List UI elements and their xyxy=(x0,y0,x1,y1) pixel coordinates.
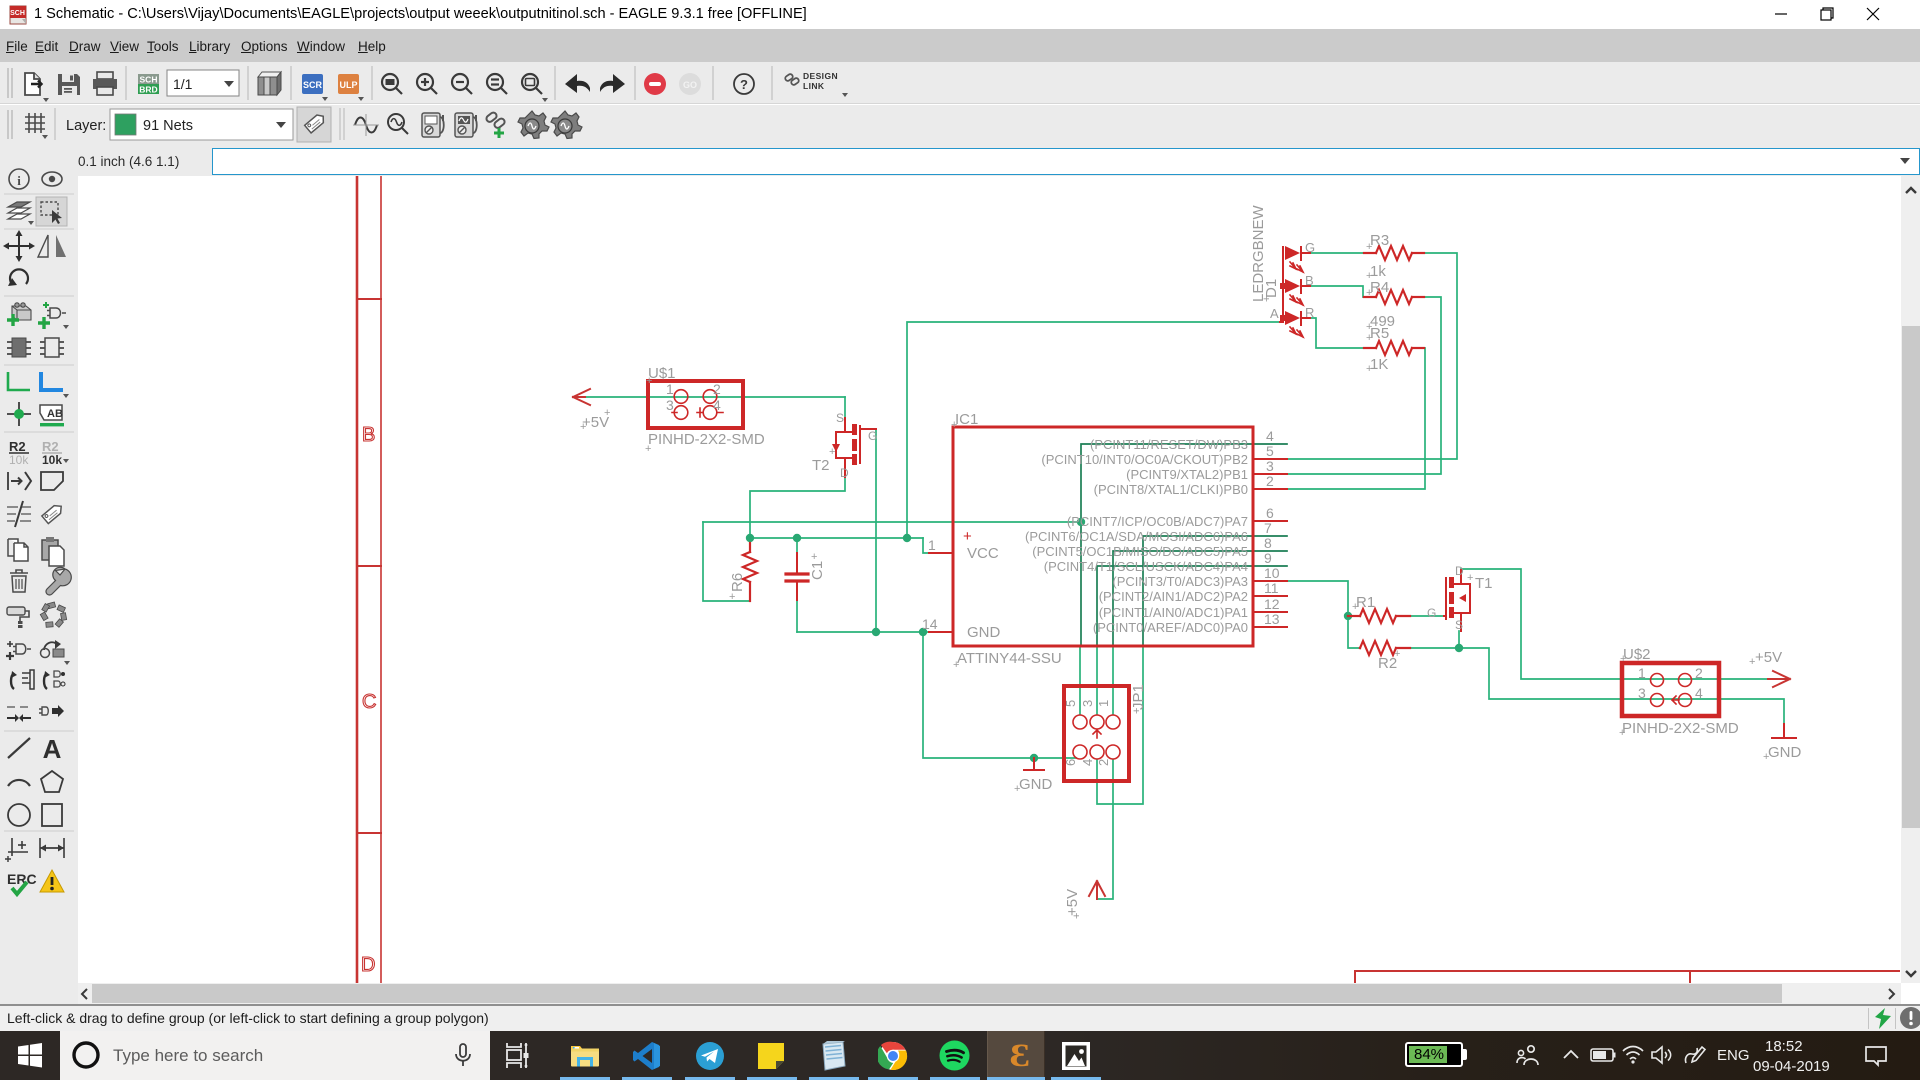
svg-text:(PCINT3/T0/ADC3)PA3: (PCINT3/T0/ADC3)PA3 xyxy=(1112,574,1248,589)
svg-text:3: 3 xyxy=(1080,700,1095,707)
svg-text:C1: C1 xyxy=(809,561,826,580)
svg-text:9: 9 xyxy=(1264,550,1272,566)
svg-text:+: + xyxy=(1394,648,1400,660)
svg-text:+: + xyxy=(1261,296,1273,302)
svg-text:(PCINT0/AREF/ADC0)PA0: (PCINT0/AREF/ADC0)PA0 xyxy=(1093,620,1248,635)
svg-text:D: D xyxy=(361,954,375,976)
svg-text:(PCINT11/RESET/DW)PB3: (PCINT11/RESET/DW)PB3 xyxy=(1090,437,1248,452)
svg-text:8: 8 xyxy=(1264,535,1272,551)
svg-text:R6: R6 xyxy=(729,573,746,592)
svg-text:(PCINT9/XTAL2)PB1: (PCINT9/XTAL2)PB1 xyxy=(1126,467,1248,482)
svg-text:PINHD-2X2-SMD: PINHD-2X2-SMD xyxy=(648,431,765,448)
svg-text:A: A xyxy=(1270,306,1279,321)
svg-text:GND: GND xyxy=(1019,776,1053,793)
svg-text:B: B xyxy=(1305,273,1314,288)
svg-text:B: B xyxy=(362,424,375,446)
svg-text:10: 10 xyxy=(1264,565,1280,581)
svg-text:2: 2 xyxy=(1266,473,1274,489)
svg-text:6: 6 xyxy=(1266,505,1274,521)
svg-text:+: + xyxy=(1131,708,1143,714)
svg-text:R2: R2 xyxy=(9,439,26,454)
svg-text:14: 14 xyxy=(922,616,938,632)
svg-text:GND: GND xyxy=(1768,744,1802,761)
svg-text:ERC: ERC xyxy=(7,871,37,887)
svg-text:R5: R5 xyxy=(1370,325,1389,342)
svg-text:+: + xyxy=(1014,783,1020,795)
svg-text:4: 4 xyxy=(1266,428,1274,444)
svg-text:G: G xyxy=(1305,240,1315,255)
svg-text:BRD: BRD xyxy=(139,85,157,95)
svg-text:ULP: ULP xyxy=(340,80,358,90)
svg-text:(PCINT8/XTAL1/CLKI)PB0: (PCINT8/XTAL1/CLKI)PB0 xyxy=(1094,482,1248,497)
svg-text:G: G xyxy=(868,429,877,443)
svg-text:(PCINT5/OC1B/MISO/DO/ADC5)PA5: (PCINT5/OC1B/MISO/DO/ADC5)PA5 xyxy=(1032,544,1248,559)
svg-text:1: 1 xyxy=(666,381,674,397)
svg-text:R2: R2 xyxy=(42,439,59,454)
svg-text:13: 13 xyxy=(1264,611,1280,627)
svg-text:+: + xyxy=(811,551,817,563)
svg-text:(PCINT7/ICP/OC0B/ADC7)PA7: (PCINT7/ICP/OC0B/ADC7)PA7 xyxy=(1067,514,1248,529)
svg-text:2: 2 xyxy=(1695,665,1703,681)
svg-text:SCR: SCR xyxy=(303,80,323,90)
svg-text:AB: AB xyxy=(47,408,63,420)
svg-text:+: + xyxy=(1366,332,1372,344)
svg-text:?: ? xyxy=(740,77,748,92)
svg-text:7: 7 xyxy=(1264,520,1272,536)
svg-text:+: + xyxy=(1352,601,1358,613)
svg-text:JP1: JP1 xyxy=(1130,684,1147,710)
svg-text:(PCINT1/AIN0/ADC1)PA1: (PCINT1/AIN0/ADC1)PA1 xyxy=(1099,605,1248,620)
svg-text:4: 4 xyxy=(1695,685,1703,701)
svg-text:DESIGN: DESIGN xyxy=(803,71,838,81)
svg-text:3: 3 xyxy=(1266,458,1274,474)
svg-text:D1: D1 xyxy=(1263,279,1280,298)
svg-text:+: + xyxy=(1619,727,1625,739)
svg-text:R3: R3 xyxy=(1370,232,1389,249)
svg-text:5: 5 xyxy=(1063,700,1078,707)
svg-text:+: + xyxy=(646,375,652,387)
svg-text:A: A xyxy=(43,734,62,764)
svg-text:U$2: U$2 xyxy=(1623,646,1651,663)
svg-text:+: + xyxy=(1467,572,1473,584)
svg-text:5: 5 xyxy=(1266,443,1274,459)
svg-text:GND: GND xyxy=(967,624,1001,641)
svg-text:+: + xyxy=(1366,363,1372,375)
svg-text:(PCINT10/INT0/OC0A/CKOUT)PB2: (PCINT10/INT0/OC0A/CKOUT)PB2 xyxy=(1041,452,1248,467)
svg-text:(PCINT2/AIN1/ADC2)PA2: (PCINT2/AIN1/ADC2)PA2 xyxy=(1099,589,1248,604)
svg-text:+: + xyxy=(729,591,735,603)
svg-text:i: i xyxy=(17,173,21,188)
svg-text:+: + xyxy=(1366,287,1372,299)
svg-text:4: 4 xyxy=(713,397,721,413)
svg-text:D: D xyxy=(1455,564,1464,578)
svg-text:ATTINY44-SSU: ATTINY44-SSU xyxy=(957,650,1062,667)
svg-text:(PCINT6/OC1A/SDA/MOSI/ADC6)PA6: (PCINT6/OC1A/SDA/MOSI/ADC6)PA6 xyxy=(1025,529,1248,544)
svg-text:T2: T2 xyxy=(812,457,830,474)
svg-text:10k: 10k xyxy=(9,453,29,467)
svg-text:11: 11 xyxy=(1264,580,1279,596)
svg-text:12: 12 xyxy=(1264,596,1280,612)
svg-text:VCC: VCC xyxy=(967,545,999,562)
svg-text:2: 2 xyxy=(1096,759,1111,766)
svg-text:3: 3 xyxy=(1638,685,1646,701)
svg-text:1K: 1K xyxy=(1370,356,1388,373)
svg-text:1/1: 1/1 xyxy=(173,76,193,92)
svg-text:S: S xyxy=(1455,618,1463,632)
svg-text:1: 1 xyxy=(1638,665,1646,681)
svg-text:+5V: +5V xyxy=(1755,649,1782,666)
svg-text:(PCINT4/T1/SCL/USCK/ADC4)PA4: (PCINT4/T1/SCL/USCK/ADC4)PA4 xyxy=(1044,559,1248,574)
svg-text:R1: R1 xyxy=(1356,594,1375,611)
svg-text:+: + xyxy=(1620,653,1626,665)
svg-text:6: 6 xyxy=(1063,759,1078,766)
svg-text:1: 1 xyxy=(928,537,936,553)
svg-text:2: 2 xyxy=(713,381,721,397)
svg-text:+: + xyxy=(1366,241,1372,253)
svg-text:R: R xyxy=(1305,305,1314,320)
svg-text:+: + xyxy=(1763,751,1769,763)
svg-text:Layer:: Layer: xyxy=(66,118,106,134)
svg-text:+: + xyxy=(645,443,651,455)
svg-text:+: + xyxy=(951,419,957,431)
svg-text:+: + xyxy=(580,421,586,433)
svg-text:LINK: LINK xyxy=(803,81,825,91)
svg-text:GO: GO xyxy=(683,80,697,90)
svg-text:3: 3 xyxy=(1009,1040,1030,1071)
svg-text:+: + xyxy=(604,407,610,419)
svg-text:3: 3 xyxy=(666,397,674,413)
svg-text:91 Nets: 91 Nets xyxy=(143,118,193,134)
svg-text:S: S xyxy=(836,411,844,425)
svg-text:+: + xyxy=(953,659,959,671)
svg-text:+: + xyxy=(1071,913,1083,919)
svg-text:SCH: SCH xyxy=(10,10,25,17)
svg-text:IC1: IC1 xyxy=(955,411,978,428)
svg-text:D: D xyxy=(840,466,849,480)
svg-text:T1: T1 xyxy=(1475,575,1493,592)
svg-text:C: C xyxy=(362,691,376,713)
svg-text:+5V: +5V xyxy=(1064,889,1081,916)
svg-text:G: G xyxy=(1427,606,1436,620)
svg-text:SCH: SCH xyxy=(140,75,158,85)
svg-text:+: + xyxy=(963,528,972,545)
svg-text:1k: 1k xyxy=(1370,263,1386,280)
svg-text:+: + xyxy=(1366,270,1372,282)
svg-text:R4: R4 xyxy=(1370,279,1389,296)
svg-text:+: + xyxy=(829,446,835,458)
svg-text:10k: 10k xyxy=(42,453,62,467)
svg-text:4: 4 xyxy=(1080,759,1095,766)
svg-text:1: 1 xyxy=(1096,700,1111,707)
svg-text:PINHD-2X2-SMD: PINHD-2X2-SMD xyxy=(1622,720,1739,737)
svg-text:+: + xyxy=(1749,656,1755,668)
